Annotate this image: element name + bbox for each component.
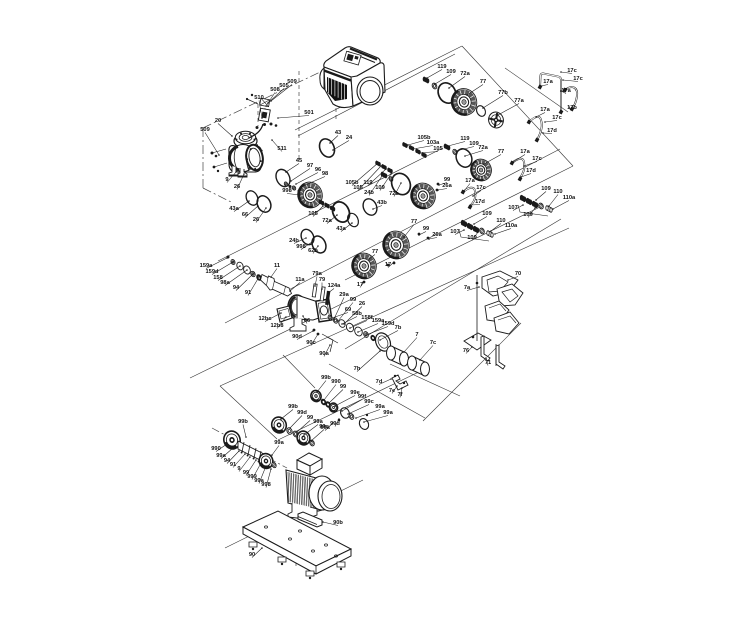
- svg-text:17a: 17a: [520, 149, 530, 155]
- svg-text:69: 69: [345, 307, 351, 313]
- svg-text:17c: 17c: [552, 115, 562, 121]
- svg-text:509: 509: [200, 127, 210, 133]
- svg-text:99a: 99a: [383, 410, 393, 416]
- svg-text:77: 77: [372, 249, 378, 255]
- svg-text:90b: 90b: [333, 520, 343, 526]
- svg-text:99a: 99a: [274, 440, 284, 446]
- svg-text:99c: 99c: [364, 399, 374, 405]
- svg-text:98: 98: [322, 171, 328, 177]
- svg-text:105: 105: [308, 211, 318, 217]
- svg-text:119: 119: [363, 180, 372, 186]
- svg-text:17a: 17a: [543, 79, 553, 85]
- svg-text:99: 99: [350, 297, 356, 303]
- svg-text:501: 501: [304, 110, 314, 116]
- svg-text:17c: 17c: [532, 156, 542, 162]
- svg-text:109: 109: [446, 69, 456, 75]
- svg-text:110a: 110a: [563, 195, 576, 201]
- svg-text:77b: 77b: [498, 90, 508, 96]
- svg-text:43: 43: [335, 130, 341, 136]
- svg-text:17d: 17d: [526, 168, 536, 174]
- svg-text:45: 45: [296, 158, 302, 164]
- svg-text:77: 77: [411, 219, 417, 225]
- svg-text:109: 109: [482, 211, 492, 217]
- svg-text:7b: 7b: [395, 325, 402, 331]
- svg-text:72a: 72a: [460, 71, 470, 77]
- svg-text:159d: 159d: [382, 321, 395, 327]
- svg-text:20: 20: [215, 118, 221, 124]
- svg-text:107: 107: [450, 229, 460, 235]
- svg-text:509: 509: [287, 79, 297, 85]
- svg-text:107: 107: [508, 205, 518, 211]
- svg-text:26a: 26a: [442, 183, 452, 189]
- svg-text:99: 99: [423, 226, 429, 232]
- svg-text:124a: 124a: [328, 283, 341, 289]
- svg-text:17a: 17a: [465, 178, 475, 184]
- svg-text:79: 79: [319, 277, 325, 283]
- svg-text:11: 11: [274, 263, 280, 269]
- svg-text:7: 7: [415, 332, 418, 338]
- svg-text:119: 119: [437, 64, 446, 70]
- svg-text:17: 17: [385, 262, 391, 268]
- svg-text:99c: 99c: [319, 424, 329, 430]
- svg-text:24: 24: [346, 135, 353, 141]
- svg-text:99b: 99b: [238, 419, 248, 425]
- svg-text:110a: 110a: [505, 223, 518, 229]
- svg-text:29a: 29a: [339, 292, 349, 298]
- svg-text:510: 510: [254, 95, 264, 101]
- svg-text:70: 70: [515, 271, 521, 277]
- svg-text:66: 66: [242, 212, 248, 218]
- svg-text:99: 99: [307, 415, 313, 421]
- svg-text:43b: 43b: [377, 200, 387, 206]
- svg-text:26a: 26a: [432, 232, 442, 238]
- svg-text:97: 97: [307, 163, 313, 169]
- svg-text:90: 90: [249, 552, 255, 558]
- svg-text:119: 119: [460, 136, 469, 142]
- svg-text:77: 77: [480, 79, 486, 85]
- svg-text:17a: 17a: [561, 88, 571, 94]
- svg-text:17a: 17a: [540, 107, 550, 113]
- svg-text:26: 26: [359, 301, 365, 307]
- svg-text:99: 99: [340, 384, 346, 390]
- svg-text:77: 77: [498, 149, 504, 155]
- svg-text:17c: 17c: [476, 185, 486, 191]
- svg-text:109: 109: [541, 186, 551, 192]
- svg-text:11a: 11a: [295, 277, 305, 283]
- svg-text:7c: 7c: [430, 340, 436, 346]
- svg-text:96: 96: [315, 167, 321, 173]
- svg-text:105: 105: [433, 146, 443, 152]
- svg-text:17d: 17d: [475, 199, 485, 205]
- svg-text:99b: 99b: [321, 375, 331, 381]
- svg-text:72a: 72a: [478, 145, 488, 151]
- svg-text:17b: 17b: [567, 105, 577, 111]
- svg-text:998: 998: [282, 188, 292, 194]
- svg-text:77a: 77a: [514, 98, 524, 104]
- svg-text:110: 110: [553, 189, 562, 195]
